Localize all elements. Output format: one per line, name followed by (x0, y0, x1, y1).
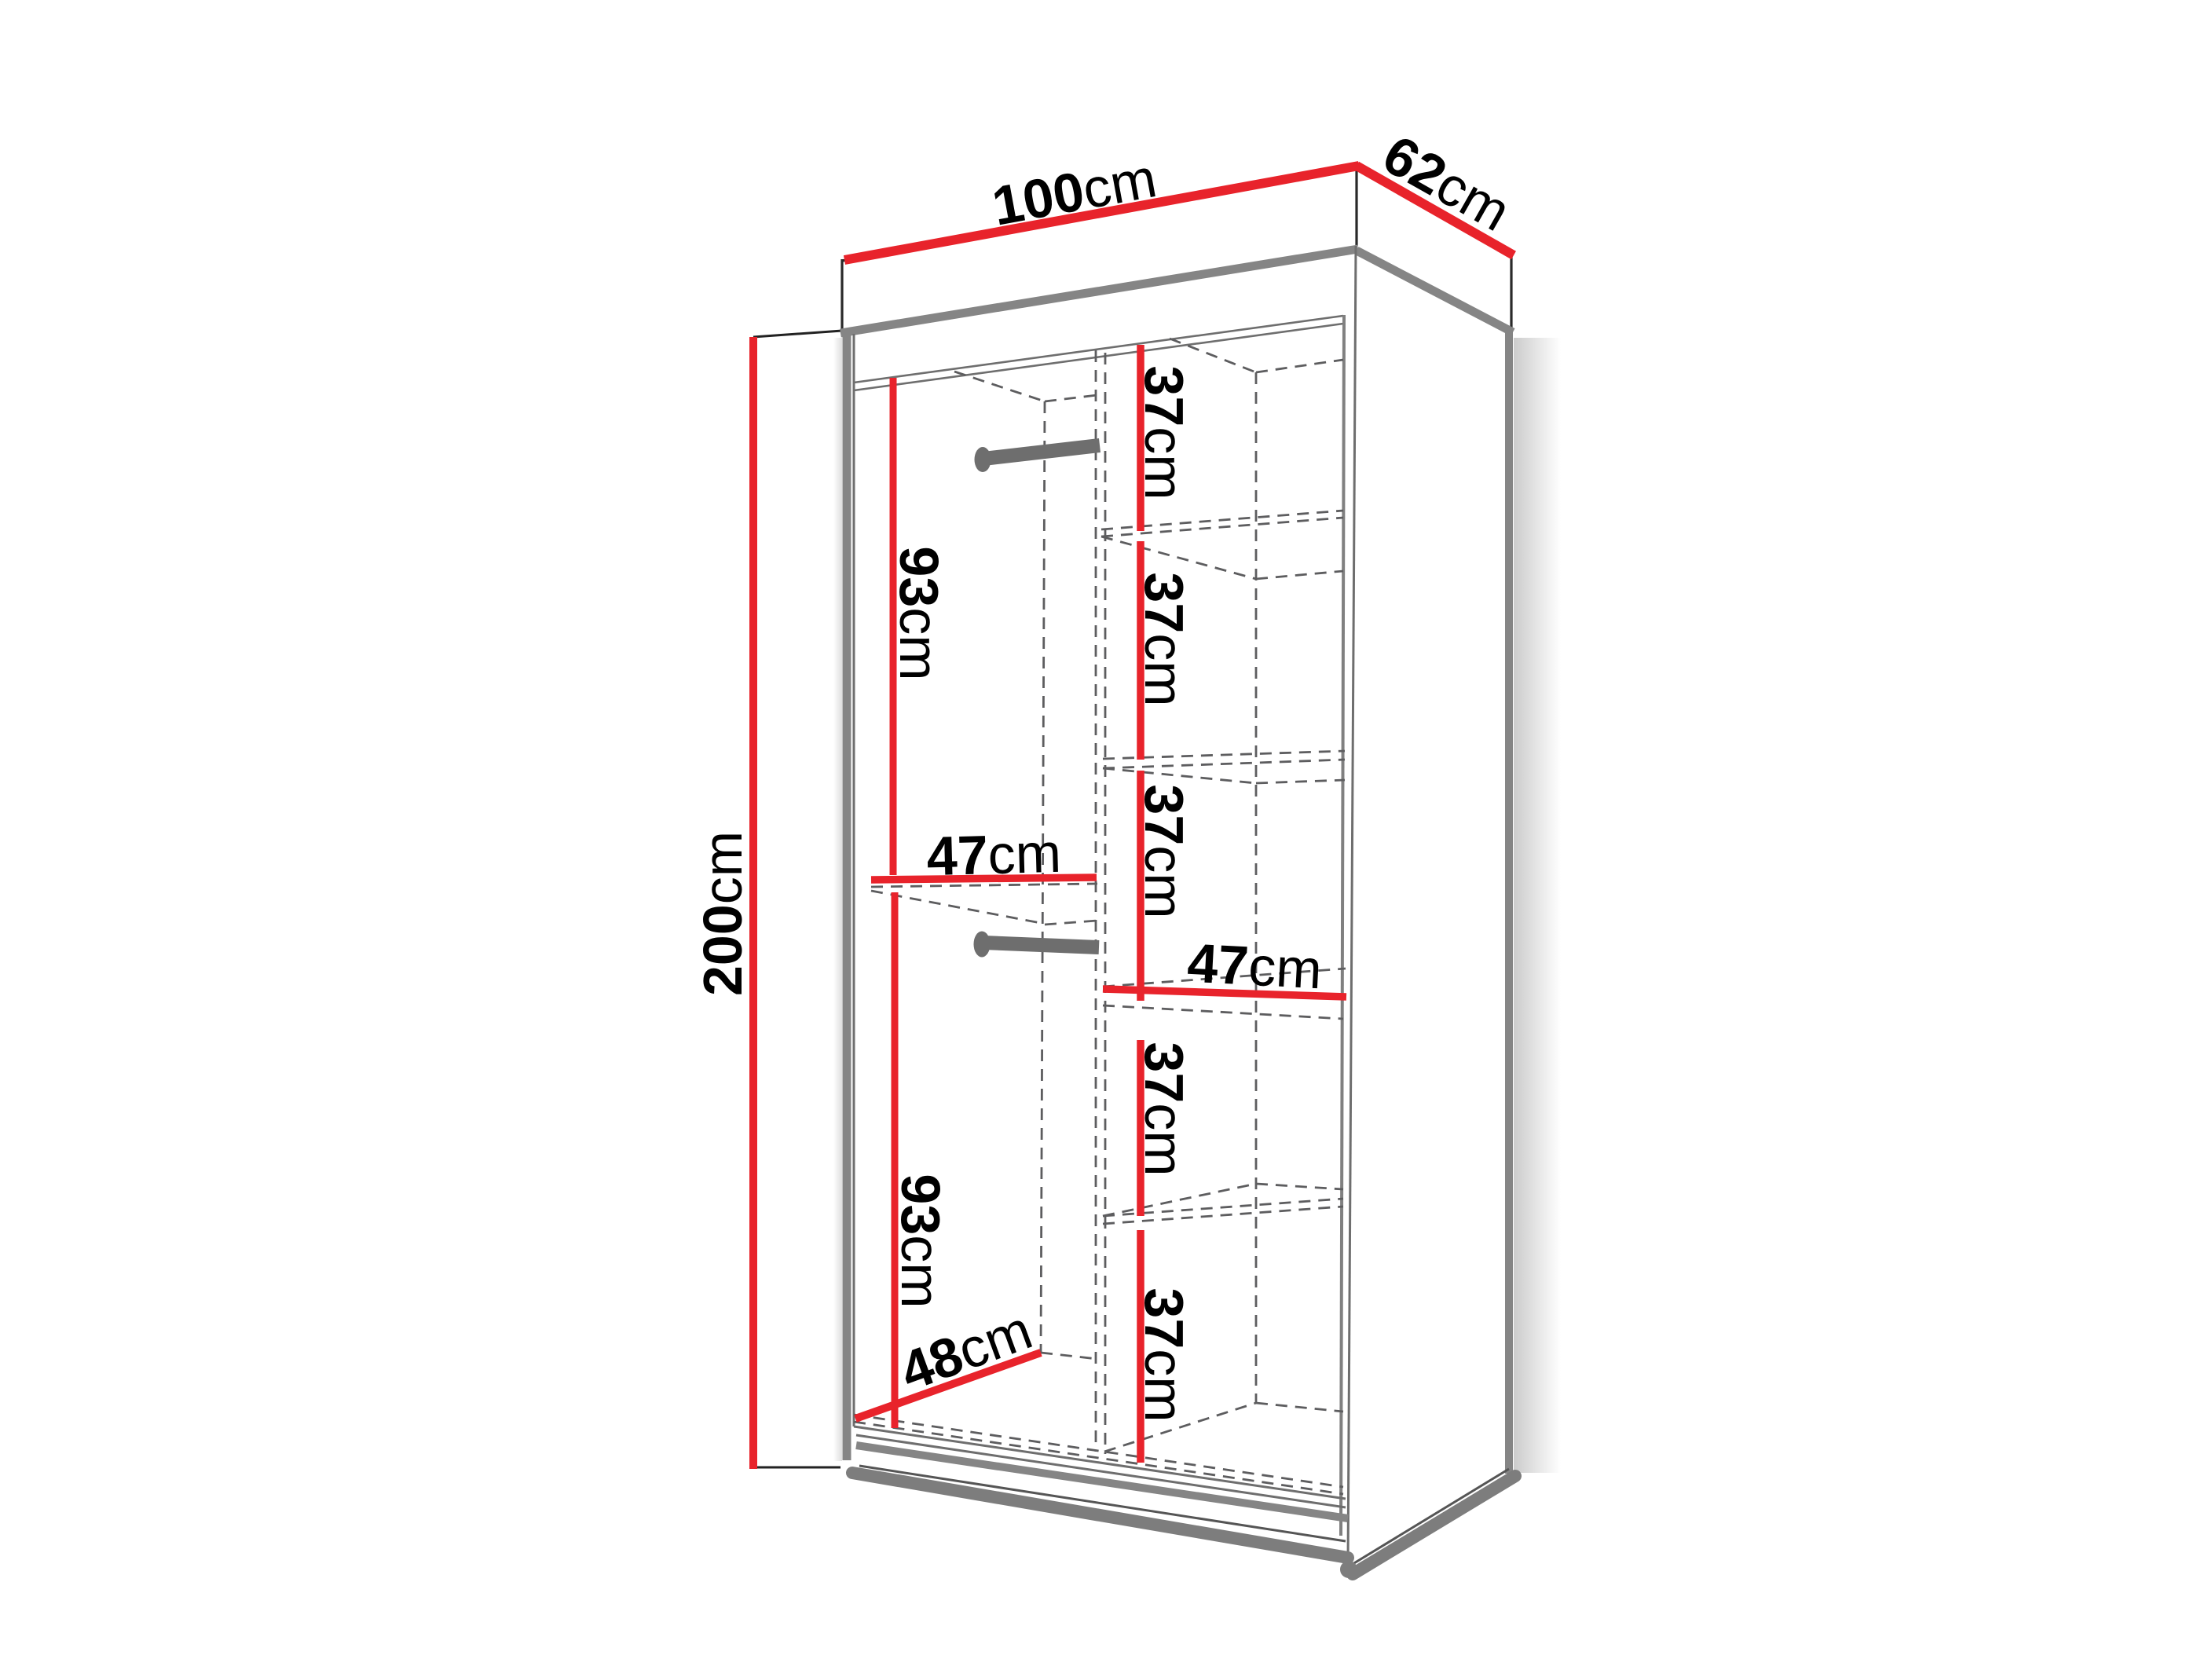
svg-text:37cm: 37cm (1133, 365, 1195, 500)
svg-text:37cm: 37cm (1133, 784, 1195, 918)
svg-text:47cm: 47cm (926, 822, 1062, 887)
svg-text:37cm: 37cm (1133, 572, 1195, 706)
svg-text:93cm: 93cm (890, 1174, 951, 1308)
svg-text:37cm: 37cm (1133, 1042, 1195, 1176)
svg-text:93cm: 93cm (888, 546, 950, 680)
svg-text:37cm: 37cm (1133, 1287, 1195, 1422)
svg-text:200cm: 200cm (692, 831, 753, 996)
svg-text:47cm: 47cm (1186, 932, 1324, 1001)
